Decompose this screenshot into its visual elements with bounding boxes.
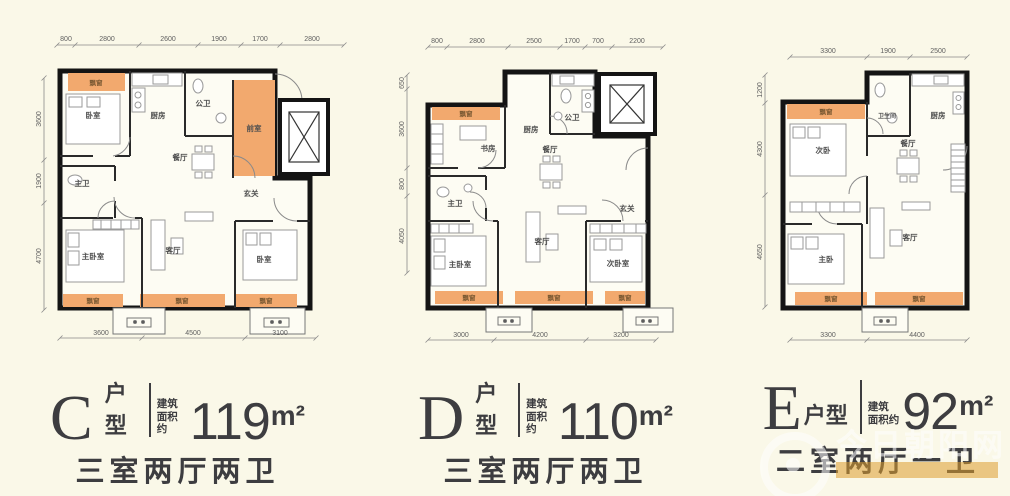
room-label-bath-public: 公卫 bbox=[196, 99, 211, 108]
dim-label: 3600 bbox=[93, 330, 109, 337]
room-label-bay: 飘窗 bbox=[548, 293, 562, 302]
layout-description: 三室两厅两卫 bbox=[50, 448, 305, 490]
dim-label: 1200 bbox=[757, 82, 764, 98]
room-label-bay: 飘窗 bbox=[913, 294, 927, 303]
unit-label-c: C 户型 建筑 面积约 119 m² 三室两厅两卫 bbox=[50, 376, 305, 490]
dim-label: 3200 bbox=[613, 332, 629, 339]
area-note: 建筑 面积约 bbox=[868, 387, 900, 426]
dim-label: 2500 bbox=[930, 48, 946, 55]
dim-label: 4400 bbox=[909, 332, 925, 339]
room-label-bay: 飘窗 bbox=[460, 109, 474, 118]
dim-label: 3300 bbox=[820, 332, 836, 339]
room-label-study: 书房 bbox=[481, 143, 496, 153]
room-label-bay: 飘窗 bbox=[825, 294, 839, 303]
dim-label: 2800 bbox=[469, 38, 485, 45]
stairs bbox=[951, 144, 965, 192]
layout-description: 二室两厅一卫 bbox=[758, 438, 998, 480]
room-label-bedroom-second: 次卧室 bbox=[607, 258, 630, 268]
area-note-line1: 建筑 bbox=[157, 398, 187, 411]
label-divider bbox=[149, 383, 151, 437]
floorplan-sheet: 800 2800 2600 1900 1700 2800 3600 1900 4… bbox=[0, 0, 1010, 496]
room-label-dining: 餐厅 bbox=[542, 144, 558, 154]
floorplan-d: 800 2800 2500 1700 700 2200 650 3600 800… bbox=[398, 6, 728, 368]
area-note-line2: 面积约 bbox=[526, 411, 555, 436]
dim-label: 700 bbox=[592, 38, 604, 45]
dim-label: 4700 bbox=[36, 248, 43, 264]
unit-label-d-row1: D 户型 建筑 面积约 110 m² bbox=[418, 376, 673, 444]
dim-label: 650 bbox=[399, 77, 406, 89]
dim-label: 4650 bbox=[757, 244, 764, 260]
room-label-bay: 飘窗 bbox=[176, 296, 190, 305]
dim-label: 3600 bbox=[36, 111, 43, 127]
room-label-bath-master: 主卫 bbox=[75, 178, 90, 188]
room-label-bay: 飘窗 bbox=[463, 293, 477, 302]
room-label-bay: 飘窗 bbox=[87, 296, 101, 305]
room-label-bathroom: 卫生间 bbox=[878, 112, 896, 120]
room-label-bedroom-master: 主卧室 bbox=[449, 259, 472, 269]
room-label-living: 客厅 bbox=[534, 236, 550, 246]
unit-label-e-row1: E 户型 建筑 面积约 92 m² bbox=[758, 380, 998, 434]
unit-label-e: E 户型 建筑 面积约 92 m² 二室两厅一卫 bbox=[758, 380, 998, 480]
ac-platforms bbox=[486, 308, 673, 332]
dim-label: 4500 bbox=[185, 330, 201, 337]
unit-letter: D bbox=[418, 392, 464, 444]
dim-label: 4200 bbox=[532, 332, 548, 339]
area-note-line1: 建筑 bbox=[868, 401, 900, 414]
dim-label: 1900 bbox=[880, 48, 896, 55]
dim-label: 3100 bbox=[272, 330, 288, 337]
room-label-foyer: 玄关 bbox=[620, 203, 635, 213]
area-note: 建筑 面积约 bbox=[157, 384, 187, 436]
unit-suffix: 户型 bbox=[93, 376, 143, 444]
room-label-bay: 飘窗 bbox=[260, 296, 274, 305]
dim-label: 1700 bbox=[564, 38, 580, 45]
dim-label: 1900 bbox=[211, 36, 227, 43]
label-divider bbox=[518, 383, 520, 437]
ac-platforms bbox=[862, 308, 908, 332]
dim-label: 800 bbox=[60, 36, 72, 43]
dim-label: 2800 bbox=[99, 36, 115, 43]
area-note-line2: 面积约 bbox=[868, 414, 900, 427]
room-label-bath-master: 主卫 bbox=[448, 198, 463, 208]
room-label-bedroom-master: 主卧室 bbox=[82, 251, 105, 261]
room-label-dining: 餐厅 bbox=[900, 138, 916, 148]
room-label-living: 客厅 bbox=[165, 245, 181, 255]
dim-label: 4050 bbox=[399, 228, 406, 244]
dim-label: 2800 bbox=[304, 36, 320, 43]
area-value: 92 bbox=[899, 391, 958, 434]
dim-label: 2500 bbox=[526, 38, 542, 45]
room-label-bedroom-right: 卧室 bbox=[257, 254, 272, 264]
dim-label: 800 bbox=[399, 178, 406, 190]
room-label-kitchen: 厨房 bbox=[524, 124, 539, 134]
area-value: 119 bbox=[187, 401, 270, 444]
floorplan-e: 3300 1900 2500 1200 4300 4650 3300 4400 … bbox=[742, 6, 1010, 368]
unit-label-d: D 户型 建筑 面积约 110 m² 三室两厅两卫 bbox=[418, 376, 673, 490]
unit-letter: C bbox=[50, 392, 93, 444]
floorplan-c: 800 2800 2600 1900 1700 2800 3600 1900 4… bbox=[35, 6, 370, 368]
layout-description: 三室两厅两卫 bbox=[418, 448, 673, 490]
unit-suffix: 户型 bbox=[802, 398, 854, 434]
area-unit: m² bbox=[638, 402, 673, 444]
area-value: 110 bbox=[555, 401, 638, 444]
area-note-line1: 建筑 bbox=[526, 398, 555, 411]
room-label-kitchen: 厨房 bbox=[931, 110, 946, 120]
room-label-dining: 餐厅 bbox=[172, 152, 188, 162]
dim-label: 3000 bbox=[453, 332, 469, 339]
unit-label-c-row1: C 户型 建筑 面积约 119 m² bbox=[50, 376, 305, 444]
elevator-shaft bbox=[599, 74, 655, 134]
dim-label: 2600 bbox=[160, 36, 176, 43]
dim-label: 4300 bbox=[757, 141, 764, 157]
room-label-bedroom: 卧室 bbox=[86, 110, 101, 120]
unit-suffix: 户型 bbox=[464, 376, 512, 444]
dim-label: 3300 bbox=[820, 48, 836, 55]
room-label-bay: 飘窗 bbox=[90, 78, 104, 87]
dim-label: 3600 bbox=[399, 121, 406, 137]
unit-letter: E bbox=[763, 382, 802, 434]
room-label-bay: 飘窗 bbox=[619, 293, 633, 302]
area-unit: m² bbox=[270, 402, 305, 444]
room-label-kitchen: 厨房 bbox=[151, 110, 166, 120]
room-label-bath-public: 公卫 bbox=[565, 113, 580, 122]
room-label-living: 客厅 bbox=[902, 232, 918, 242]
room-label-foyer: 玄关 bbox=[244, 188, 259, 198]
label-divider bbox=[860, 380, 862, 434]
room-label-bedroom-master: 主卧 bbox=[819, 254, 834, 264]
room-label-front-room: 前室 bbox=[247, 123, 262, 133]
room-label-bedroom-second: 次卧 bbox=[816, 145, 831, 155]
room-label-bay: 飘窗 bbox=[820, 107, 834, 116]
dim-label: 800 bbox=[431, 38, 443, 45]
area-unit: m² bbox=[958, 392, 993, 434]
area-note: 建筑 面积约 bbox=[526, 384, 555, 436]
area-note-line2: 面积约 bbox=[157, 411, 187, 436]
dim-label: 1700 bbox=[252, 36, 268, 43]
dim-label: 1900 bbox=[36, 173, 43, 189]
elevator-shaft bbox=[280, 100, 328, 174]
dim-label: 2200 bbox=[629, 38, 645, 45]
